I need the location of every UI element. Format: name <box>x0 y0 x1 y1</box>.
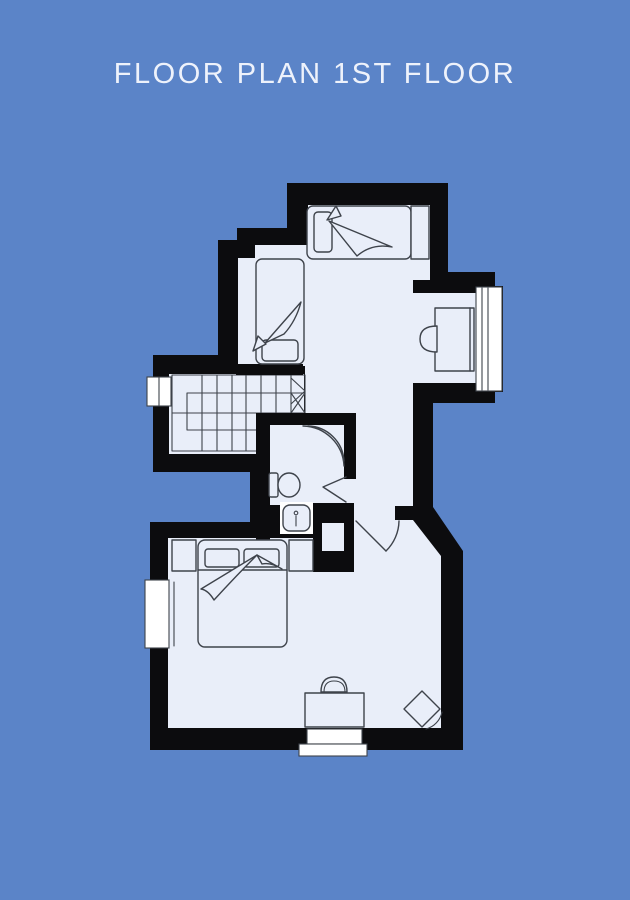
bedroom-bottom-window <box>307 729 362 744</box>
door-jamb-stub <box>395 506 413 520</box>
floor-plan-svg <box>0 0 630 900</box>
nightstand-left <box>172 540 196 571</box>
upper-desk-chair <box>420 326 437 352</box>
double-bed-pillow-left <box>205 549 239 567</box>
wall-above-stairs <box>236 364 303 375</box>
lower-desk <box>305 693 364 727</box>
single-bed-left-pillow <box>262 340 298 361</box>
nightstand-right <box>289 540 313 571</box>
single-bed-top-footboard <box>411 206 429 259</box>
bathroom-wall-top <box>256 413 356 425</box>
toilet-tank <box>269 473 278 497</box>
toilet-bowl <box>278 473 300 497</box>
bathroom-wall-left <box>256 413 270 540</box>
nook-window <box>476 287 502 391</box>
bedroom-bottom-window-sill <box>299 744 367 756</box>
bedroom-side-window <box>145 580 169 648</box>
duct <box>322 523 344 551</box>
upper-desk <box>435 308 474 371</box>
sink-area <box>280 502 313 534</box>
bathroom-wall-right <box>344 413 356 479</box>
floor-plan-page: FLOOR PLAN 1ST FLOOR <box>0 0 630 900</box>
